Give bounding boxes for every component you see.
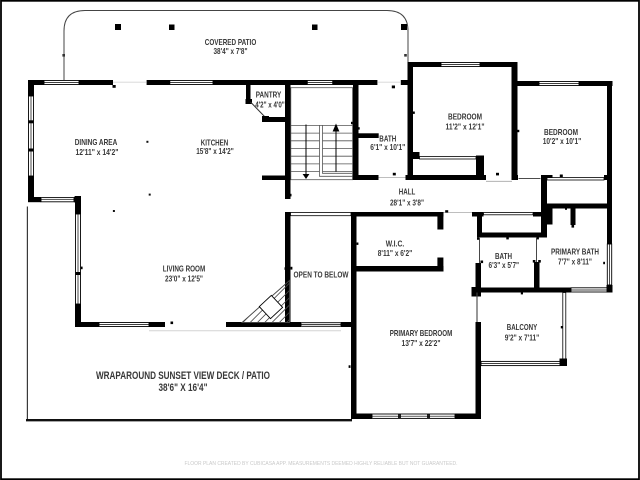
svg-text:23'0" x 12'5": 23'0" x 12'5" — [165, 275, 203, 284]
svg-text:BALCONY: BALCONY — [507, 323, 538, 332]
svg-text:PANTRY: PANTRY — [256, 91, 282, 100]
svg-text:8'11" x 6'2": 8'11" x 6'2" — [378, 249, 413, 258]
svg-text:13'7" x 22'2": 13'7" x 22'2" — [402, 339, 441, 348]
svg-text:7'7" x 8'11": 7'7" x 8'11" — [558, 258, 592, 267]
svg-text:W.I.C.: W.I.C. — [386, 240, 405, 249]
svg-text:12'11" x 14'2": 12'11" x 14'2" — [76, 148, 119, 157]
svg-text:PRIMARY BATH: PRIMARY BATH — [551, 248, 599, 257]
svg-text:HALL: HALL — [399, 188, 416, 197]
svg-text:OPEN TO BELOW: OPEN TO BELOW — [294, 271, 349, 280]
svg-text:6'3" x 5'7": 6'3" x 5'7" — [489, 261, 520, 270]
svg-text:11'2" x 12'1": 11'2" x 12'1" — [446, 123, 485, 132]
svg-text:10'2" x 10'1": 10'2" x 10'1" — [543, 137, 582, 146]
svg-text:9'2" x 7'11": 9'2" x 7'11" — [505, 334, 540, 343]
svg-text:COVERED PATIO: COVERED PATIO — [205, 38, 257, 47]
svg-text:BEDROOM: BEDROOM — [544, 128, 578, 137]
svg-text:38'4" x 7'8": 38'4" x 7'8" — [214, 47, 248, 56]
svg-text:WRAPAROUND SUNSET VIEW DECK /: WRAPAROUND SUNSET VIEW DECK / PATIO — [96, 370, 270, 382]
svg-text:28'1" x 3'8": 28'1" x 3'8" — [390, 199, 424, 208]
svg-text:38'6" X 16'4": 38'6" X 16'4" — [159, 382, 208, 394]
svg-text:15'8" x 14'2": 15'8" x 14'2" — [196, 147, 234, 156]
svg-text:LIVING ROOM: LIVING ROOM — [163, 265, 206, 274]
svg-text:DINING AREA: DINING AREA — [75, 138, 118, 147]
svg-text:PRIMARY BEDROOM: PRIMARY BEDROOM — [390, 329, 453, 338]
svg-text:6'1" x 10'1": 6'1" x 10'1" — [370, 143, 405, 152]
svg-text:4'2" x 4'0": 4'2" x 4'0" — [255, 101, 285, 110]
svg-text:BATH: BATH — [495, 252, 512, 261]
svg-text:FLOOR PLAN CREATED BY CUBICASA: FLOOR PLAN CREATED BY CUBICASA APP. MEAS… — [185, 461, 458, 467]
svg-text:BEDROOM: BEDROOM — [448, 113, 482, 122]
